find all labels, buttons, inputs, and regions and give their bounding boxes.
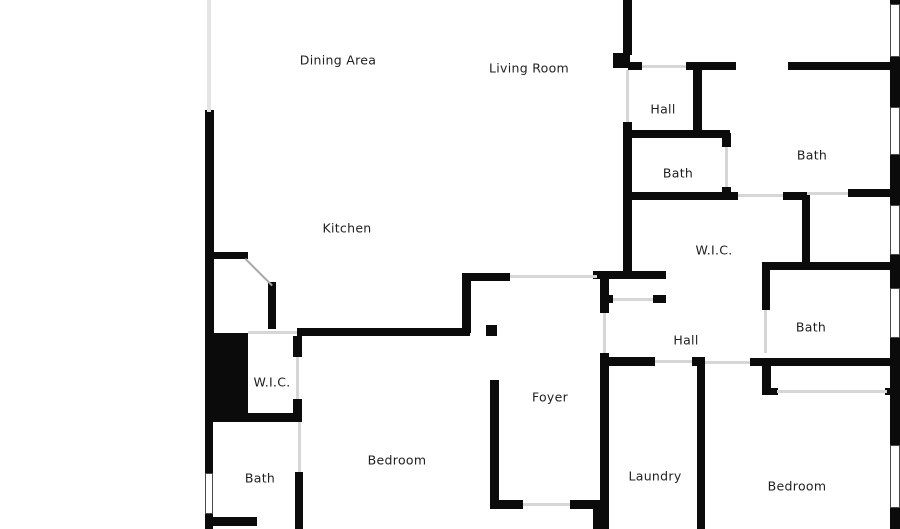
wall-segment: [653, 295, 666, 303]
wall-segment: [268, 282, 276, 329]
wall-segment: [762, 388, 778, 395]
room-label: Laundry: [628, 469, 681, 484]
wall-segment: [213, 517, 257, 526]
solid-block: [205, 333, 248, 413]
room-label: Living Room: [489, 61, 569, 76]
wall-segment: [295, 472, 303, 529]
wall-segment: [603, 357, 655, 366]
wall-segment: [462, 273, 510, 281]
wall-segment: [293, 336, 302, 357]
wall-segment: [890, 255, 900, 288]
room-label: Dining Area: [300, 53, 376, 68]
faint-wall: [207, 0, 211, 112]
room-label: Hall: [673, 333, 698, 348]
door-opening: [738, 194, 783, 197]
door-swing: [245, 258, 273, 286]
wall-segment: [293, 399, 302, 414]
wall-segment: [890, 338, 900, 445]
wall-segment: [205, 110, 214, 333]
wall-segment: [600, 295, 613, 303]
door-opening: [248, 331, 297, 334]
wall-segment: [693, 65, 702, 132]
wall-segment: [297, 328, 470, 336]
door-opening: [642, 65, 686, 68]
room-label: Bath: [663, 166, 693, 181]
door-opening: [705, 361, 750, 364]
floor-plan: Dining AreaLiving RoomHallBathBathW.I.C.…: [0, 0, 900, 529]
wall-segment: [722, 133, 731, 147]
wall-segment: [762, 270, 770, 310]
window: [890, 4, 900, 57]
wall-segment: [462, 273, 471, 333]
room-label: W.I.C.: [253, 375, 290, 390]
door-opening: [298, 422, 301, 472]
room-label: Foyer: [532, 390, 568, 405]
wall-segment: [697, 360, 705, 529]
wall-segment: [600, 273, 609, 313]
room-label: Hall: [650, 102, 675, 117]
wall-segment: [890, 508, 900, 529]
wall-segment: [208, 413, 302, 422]
door-opening: [603, 313, 606, 353]
room-label: Bath: [796, 320, 826, 335]
door-opening: [510, 275, 597, 278]
room-label: Bath: [245, 471, 275, 486]
window: [890, 205, 900, 255]
door-opening: [807, 192, 848, 195]
wall-segment: [486, 325, 497, 336]
wall-segment: [490, 500, 523, 509]
door-opening: [296, 357, 299, 399]
window: [890, 445, 900, 508]
wall-segment: [205, 514, 213, 529]
wall-segment: [205, 413, 213, 475]
door-opening: [523, 503, 570, 506]
wall-segment: [600, 353, 609, 529]
door-opening: [764, 310, 767, 353]
door-opening: [725, 147, 728, 187]
wall-segment: [788, 62, 890, 70]
wall-segment: [628, 130, 730, 138]
window: [890, 107, 900, 155]
wall-segment: [750, 358, 890, 366]
room-label: Bedroom: [368, 453, 427, 468]
window: [890, 288, 900, 338]
wall-segment: [890, 155, 900, 205]
door-opening: [613, 298, 653, 301]
room-label: Bath: [797, 148, 827, 163]
room-label: Kitchen: [322, 221, 371, 236]
window: [205, 473, 213, 514]
door-opening: [655, 360, 692, 363]
wall-segment: [628, 62, 642, 70]
wall-segment: [890, 57, 900, 107]
door-opening: [777, 390, 887, 393]
wall-segment: [628, 192, 738, 200]
wall-segment: [802, 192, 810, 262]
room-label: W.I.C.: [695, 243, 732, 258]
door-opening: [626, 70, 629, 122]
wall-segment: [623, 0, 632, 55]
wall-segment: [490, 380, 499, 505]
room-label: Bedroom: [768, 479, 827, 494]
wall-segment: [212, 252, 248, 259]
wall-segment: [762, 262, 900, 270]
